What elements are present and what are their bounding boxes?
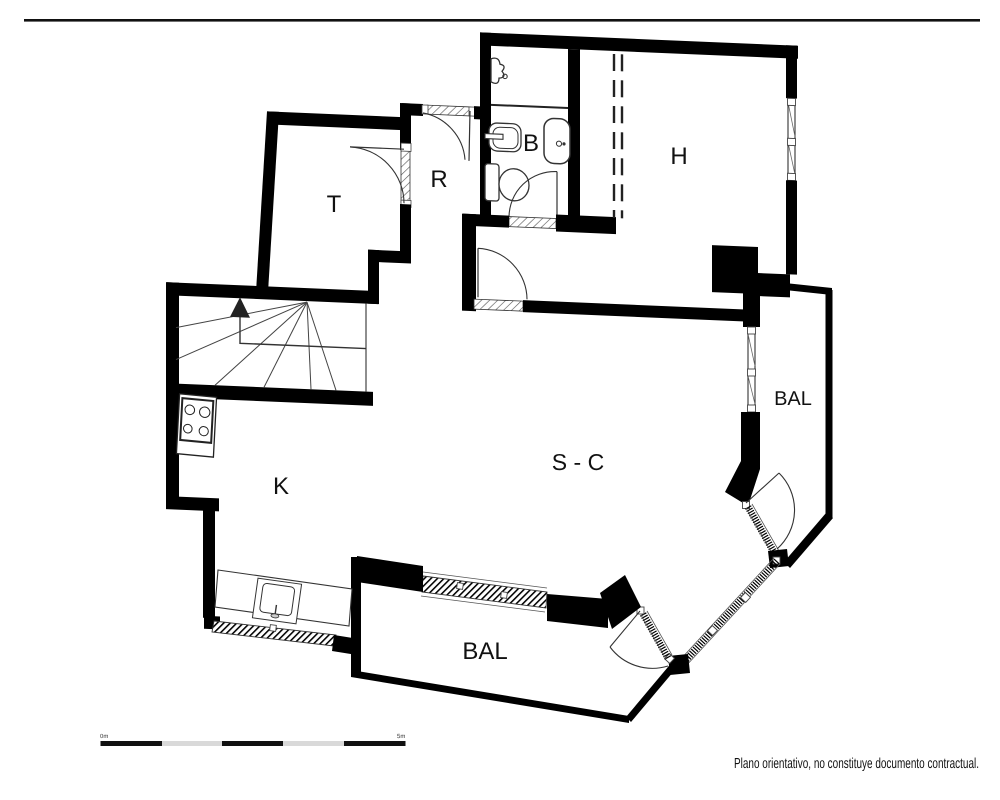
svg-text:Plano orientativo, no constitu: Plano orientativo, no constituye documen… [734, 756, 979, 772]
svg-text:T: T [327, 191, 342, 218]
svg-text:B: B [523, 130, 539, 157]
svg-text:H: H [670, 143, 687, 170]
svg-text:BAL: BAL [774, 388, 812, 410]
svg-text:0m: 0m [100, 733, 108, 740]
svg-text:K: K [273, 473, 289, 500]
svg-text:R: R [430, 166, 447, 193]
svg-text:5m: 5m [397, 733, 405, 740]
svg-text:S - C: S - C [552, 449, 604, 475]
svg-text:BAL: BAL [462, 638, 507, 665]
